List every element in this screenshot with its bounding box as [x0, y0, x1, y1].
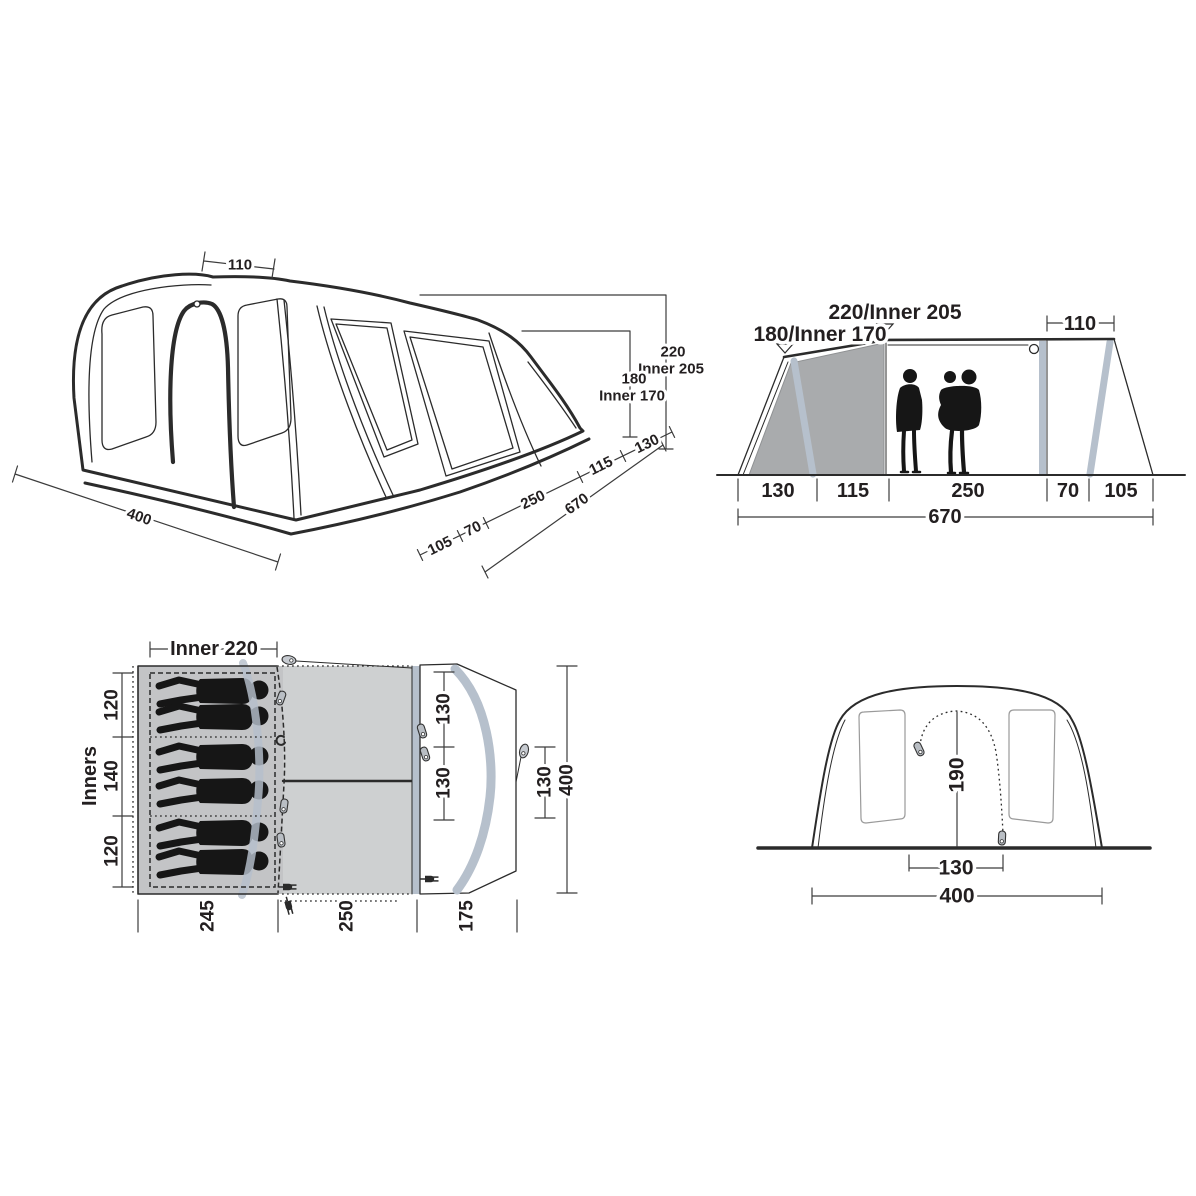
air-pole-rear: [1090, 342, 1110, 474]
floor-porch-130: 130: [535, 766, 556, 798]
dim-label-seg-250: 250: [518, 487, 548, 513]
side-seg-105: 105: [1104, 480, 1137, 502]
dim-label-width: 400: [124, 505, 153, 529]
floor-130a: 130: [434, 693, 455, 725]
dim-label-seg-115: 115: [586, 453, 615, 479]
side-front-height-label: 180/Inner 170: [753, 323, 886, 346]
floor-inner-width-label: Inner 220: [170, 638, 258, 660]
dim-label-top-width: 110: [228, 257, 252, 274]
peg-icon: [518, 743, 530, 759]
mid-air-pole: [412, 666, 420, 894]
floor-plan-view: Inner 220 120 140 120 Inners 130 130 130…: [79, 638, 578, 932]
front-elevation-view: 190 130 400: [758, 686, 1150, 908]
zipper-pull-icon: [913, 741, 925, 757]
adult-silhouette: [896, 369, 922, 472]
side-total-length: 670: [928, 506, 961, 528]
front-window-right: [1009, 710, 1055, 823]
floor-130b: 130: [434, 767, 455, 799]
adult-with-child-silhouette: [938, 370, 981, 474]
tent-dimensions-diagram: 110 220 Inner 205 180 Inner 170 130 115 …: [0, 0, 1196, 1196]
air-pole-mid: [1039, 341, 1046, 475]
dim-label-wall-height: 180: [621, 371, 646, 388]
front-400: 400: [939, 885, 974, 908]
hang-ring-icon: [1030, 345, 1039, 354]
side-peak-height-label: 220/Inner 205: [828, 301, 961, 324]
front-window-left: [859, 710, 905, 823]
front-130: 130: [938, 857, 973, 880]
floor-depth-120b: 120: [102, 835, 123, 867]
dim-label-seg-130: 130: [632, 431, 662, 457]
peg-icon: [281, 655, 296, 666]
dim-label-seg-70: 70: [462, 518, 484, 541]
side-rear-top-label: 110: [1064, 313, 1096, 335]
floor-400: 400: [557, 764, 578, 796]
zipper-pull-icon: [998, 831, 1006, 845]
dim-label-height-inner: Inner 205: [638, 361, 704, 378]
zipper-pull-icon: [277, 833, 286, 848]
front-190: 190: [946, 757, 969, 792]
side-seg-250: 250: [951, 480, 984, 502]
floor-depth-120a: 120: [102, 689, 123, 721]
floor-245: 245: [198, 900, 219, 932]
floor-depth-140: 140: [102, 760, 123, 792]
side-seg-115: 115: [837, 480, 869, 502]
side-seg-130: 130: [761, 480, 794, 502]
dim-label-seg-105: 105: [425, 533, 455, 559]
guy-line-right: [516, 757, 521, 782]
side-elevation-view: 180/Inner 170 220/Inner 205 110 130 115 …: [717, 301, 1185, 528]
floor-175: 175: [457, 900, 478, 932]
perspective-view: 110 220 Inner 205 180 Inner 170 130 115 …: [13, 252, 704, 578]
side-seg-70: 70: [1057, 480, 1079, 502]
power-plug-icon: [283, 896, 294, 915]
zipper-pull-icon: [280, 799, 289, 814]
diagram-canvas: 110 220 Inner 205 180 Inner 170 130 115 …: [0, 0, 1196, 1196]
floor-250: 250: [337, 900, 358, 932]
dim-label-wall-height-inner: Inner 170: [599, 388, 665, 405]
inners-label: Inners: [79, 746, 101, 806]
dim-label-height: 220: [660, 344, 685, 361]
bottom-dim-ticks: [738, 479, 1153, 501]
tent-body-outline: [73, 274, 583, 520]
door-handle-icon: [194, 301, 200, 307]
